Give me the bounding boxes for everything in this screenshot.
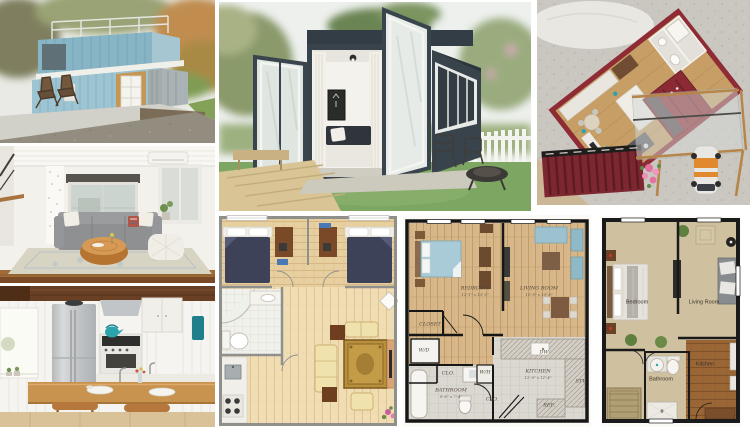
photo-container-model (537, 0, 750, 205)
photo-living-room (0, 146, 215, 283)
container-door (148, 69, 162, 108)
photo-kitchen (0, 286, 215, 427)
floor-plan-tan: Bedroom Living Room Bathroom Kitchen (601, 216, 741, 427)
side-table (330, 325, 345, 340)
bench (326, 126, 371, 167)
toy-van (691, 146, 721, 194)
armchair (351, 393, 373, 410)
kitchen-fixtures (221, 357, 247, 423)
right-window (158, 164, 202, 224)
loft-edge (0, 277, 215, 283)
counter (96, 374, 215, 382)
bed-left (223, 227, 272, 283)
side-table (322, 387, 337, 402)
plant (625, 334, 637, 346)
floor-plan-labeled: BEDROOM 12'-1" x 13'-3" LIVING ROOM 12'-… (403, 215, 591, 427)
right-glass-door (384, 10, 429, 180)
rug (607, 388, 641, 421)
photo-open-container-cabin (219, 2, 531, 211)
water-heater (477, 365, 493, 383)
tv (389, 350, 392, 378)
ceiling-beam (0, 286, 215, 301)
loveseat (345, 322, 378, 337)
floor-plan-rendered (219, 215, 398, 427)
container-home-collage: BEDROOM 12'-1" x 13'-3" LIVING ROOM 12'-… (0, 0, 750, 427)
range-hood (100, 300, 142, 316)
plant (655, 336, 667, 348)
stove (100, 334, 142, 374)
washer-dryer (411, 339, 439, 363)
corrugated-panel (541, 145, 644, 198)
left-window (0, 308, 38, 378)
sofa (315, 345, 337, 392)
bed-right (345, 227, 394, 283)
floor (0, 412, 215, 427)
upper-cabinets (142, 298, 182, 332)
teal-towel (192, 316, 204, 340)
photo-blue-container-house (0, 0, 215, 143)
pouf (148, 234, 184, 260)
wood-bench (233, 150, 289, 160)
bed (607, 264, 648, 320)
fridge (52, 300, 96, 392)
stair-rail (0, 146, 14, 246)
ac-unit (148, 152, 188, 164)
kitchen-floor (686, 340, 737, 419)
